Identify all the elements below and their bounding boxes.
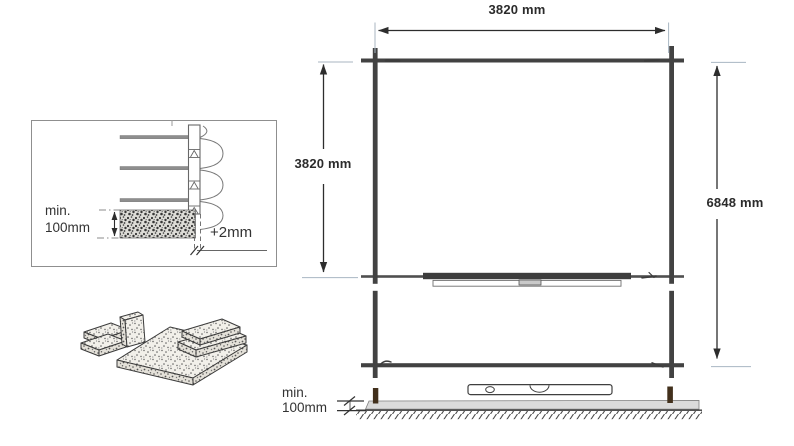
ground-hatching (356, 411, 702, 419)
ground-side-view (337, 385, 702, 420)
foundation-blocks-illustration (62, 295, 262, 395)
inset-min-depth-label: min. 100mm (45, 202, 90, 236)
side-min-height-line1: min. (282, 386, 327, 401)
inset-min-depth-line1: min. (45, 202, 90, 219)
top-width-dimension-label: 3820 mm (470, 2, 564, 17)
right-post-gap (668, 284, 675, 291)
concrete-foundation-block (120, 210, 196, 238)
middle-beam-connector (519, 280, 541, 285)
bottom-beam (361, 363, 684, 367)
foundation-detail-inset: min. 100mm +2mm (31, 120, 277, 267)
side-min-height-label: min. 100mm (282, 386, 327, 415)
standing-block (120, 312, 145, 347)
foundation-assembly-diagram: min. 100mm +2mm (0, 0, 794, 446)
side-min-height-line2: 100mm (282, 401, 327, 416)
top-beam (361, 59, 684, 63)
top-width-dimension (375, 23, 669, 54)
right-length-dimension (711, 62, 751, 366)
right-anchor-post (667, 387, 673, 404)
log-end-profiles (200, 126, 223, 230)
left-post-gap (372, 284, 379, 291)
plan-frame (361, 46, 684, 378)
min-depth-dimension (97, 210, 123, 238)
log-wall-section-drawing (31, 120, 277, 267)
right-post (669, 46, 674, 378)
inset-gap-tolerance-label: +2mm (210, 224, 252, 241)
left-anchor-post (373, 388, 378, 404)
middle-beam-thick-section (423, 273, 631, 279)
spirit-level-icon (468, 385, 612, 395)
right-length-dimension-label: 6848 mm (703, 195, 767, 210)
wall-logs (120, 136, 189, 202)
foundation-slab (366, 400, 700, 409)
foundation-blocks-sketch (62, 295, 262, 395)
left-depth-dimension-label: 3820 mm (293, 156, 353, 171)
inset-min-depth-line2: 100mm (45, 219, 90, 236)
left-post (373, 48, 378, 378)
pencil-marks (379, 60, 663, 367)
